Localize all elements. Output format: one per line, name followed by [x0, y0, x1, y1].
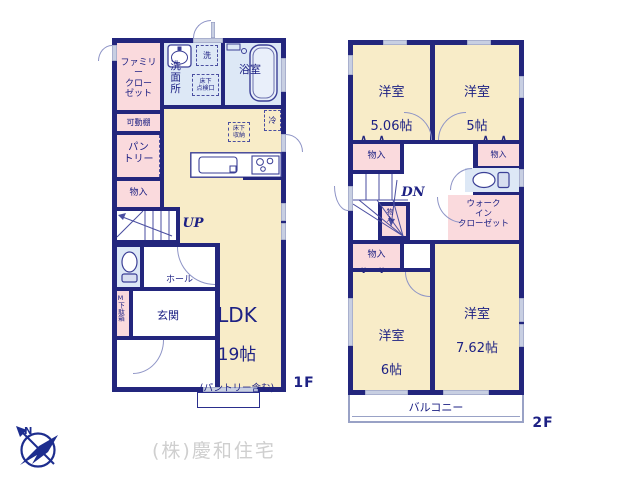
- closet-chevron-icon: ∧: [360, 135, 367, 144]
- room-corridor-2f: [404, 244, 430, 268]
- stairs-down-graphic: [353, 174, 408, 240]
- entrance-porch: [197, 392, 260, 408]
- room-vestibule: [117, 340, 215, 387]
- window-top-bedroom1: [383, 40, 407, 45]
- underfloor-hatch-label: 床下 点検口: [196, 78, 214, 92]
- window-bath-right: [281, 58, 286, 92]
- window-right-bedroom4-2: [519, 324, 524, 347]
- compass-n-label: N: [24, 426, 32, 437]
- closet-chevron-icon: ∨: [360, 267, 367, 276]
- window-top-bedroom2: [467, 40, 491, 45]
- underfloor-storage: 床下 収納: [228, 122, 250, 142]
- door-panel-top: [211, 22, 215, 38]
- closet-chevron-icon: ∧: [378, 135, 385, 144]
- washbasin-icon: [167, 44, 192, 69]
- window-right-toilet: [519, 169, 524, 187]
- room-entrance: [133, 291, 215, 336]
- room-shoe-box: [117, 291, 129, 336]
- underfloor-storage-label: 床下 収納: [233, 125, 245, 139]
- toilet-icon-2f: [470, 170, 516, 190]
- window-right-bedroom2: [519, 76, 524, 98]
- window-left-stairs: [348, 186, 353, 211]
- floorplan-2f: ∧ ∧ ∧ ∧ ∨ ∨ 洋室 5.06帖 洋室 5帖 物入 物入 DN 物入 ウ…: [348, 40, 524, 395]
- stairs-up-graphic: [117, 211, 176, 240]
- floorplan-1f: 洗 床下 点検口 冷 床下 収納: [112, 38, 286, 392]
- closet-chevron-icon: ∧: [500, 135, 507, 144]
- room-storage-1f: [117, 181, 160, 207]
- fridge-label: 冷: [269, 116, 277, 126]
- kitchen-counter: [190, 152, 282, 180]
- closet-chevron-icon: ∨: [378, 267, 385, 276]
- room-storage-2f-top-left: [353, 144, 400, 170]
- room-bedroom4: [435, 244, 519, 390]
- window-right-bedroom4-1: [519, 298, 524, 322]
- fridge-space: 冷: [264, 110, 281, 131]
- underfloor-hatch: 床下 点検口: [192, 74, 219, 96]
- room-family-closet: [117, 43, 160, 110]
- closet-chevron-icon: ∧: [482, 135, 489, 144]
- washer-label: 洗: [203, 51, 211, 61]
- room-pantry: [117, 135, 160, 177]
- door-opening-right: [281, 134, 286, 152]
- balcony-rail: [352, 416, 520, 417]
- room-storage-2f-bottom-left: [353, 244, 400, 268]
- bathtub-icon: [249, 44, 279, 103]
- floor1-label: 1F: [286, 375, 322, 391]
- balcony: バルコニー: [348, 395, 524, 423]
- balcony-label: バルコニー: [350, 402, 522, 415]
- shower-fixture-icon: [226, 43, 248, 56]
- door-arc-exterior-top: [193, 20, 211, 38]
- room-movable-shelf: [117, 114, 160, 131]
- company-watermark: (株)慶和住宅: [152, 436, 276, 463]
- door-opening-top: [193, 38, 223, 43]
- window-ldk-right-1: [281, 203, 286, 221]
- door-arc-exterior-right: [286, 134, 303, 152]
- window-ldk-right-2: [281, 223, 286, 240]
- floor2-label: 2F: [525, 415, 561, 431]
- window-left: [112, 45, 117, 61]
- door-arc-exterior-left-2f: [334, 186, 348, 211]
- toilet-icon-1f: [120, 250, 139, 285]
- window-left-bedroom3: [348, 298, 353, 346]
- room-storage-2f-right: [478, 144, 519, 166]
- window-left-bedroom1: [348, 55, 353, 75]
- window-arc-left: [98, 45, 112, 61]
- washer-space: 洗: [196, 45, 218, 66]
- compass-logo: N: [12, 422, 66, 476]
